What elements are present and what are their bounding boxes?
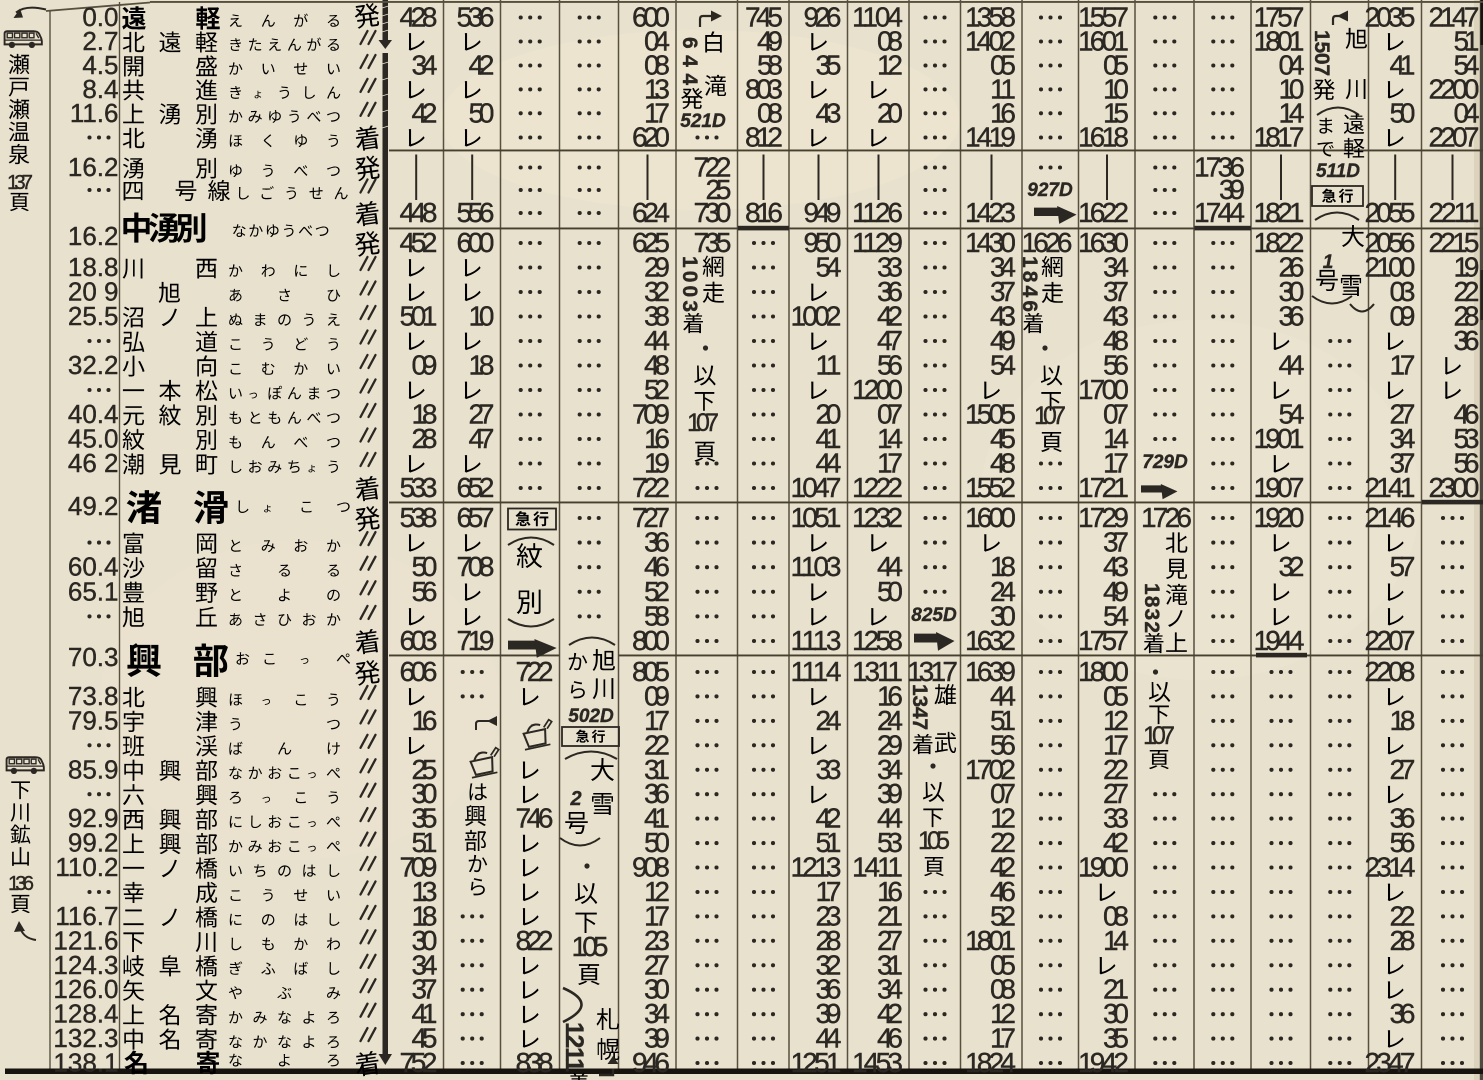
svg-text:1251: 1251 bbox=[791, 1047, 842, 1078]
svg-text:18: 18 bbox=[1390, 705, 1416, 736]
svg-text:12: 12 bbox=[877, 50, 903, 81]
svg-text:1721: 1721 bbox=[1078, 472, 1129, 503]
svg-text:1507: 1507 bbox=[1310, 30, 1333, 76]
svg-text:09: 09 bbox=[1390, 301, 1416, 332]
svg-text:107: 107 bbox=[1034, 402, 1066, 430]
svg-text:1453: 1453 bbox=[852, 1047, 903, 1078]
svg-text:25.5: 25.5 bbox=[68, 301, 119, 331]
svg-text:110.2: 110.2 bbox=[55, 852, 118, 882]
svg-text:2035: 2035 bbox=[1365, 2, 1416, 33]
svg-text:2347: 2347 bbox=[1365, 1047, 1416, 1078]
svg-text:56: 56 bbox=[412, 576, 438, 607]
svg-text:50: 50 bbox=[877, 576, 903, 607]
svg-text:41: 41 bbox=[1390, 50, 1416, 81]
svg-text:2146: 2146 bbox=[1365, 502, 1416, 533]
svg-text:538: 538 bbox=[400, 502, 438, 533]
svg-text:18: 18 bbox=[469, 350, 495, 381]
svg-text:1419: 1419 bbox=[965, 122, 1016, 153]
svg-text:652: 652 bbox=[457, 472, 495, 503]
svg-text:1901: 1901 bbox=[1254, 423, 1305, 454]
svg-text:1600: 1600 bbox=[965, 502, 1016, 533]
svg-text:1232: 1232 bbox=[852, 502, 903, 533]
svg-text:722: 722 bbox=[516, 656, 554, 687]
svg-text:11.6: 11.6 bbox=[70, 98, 119, 128]
svg-text:1626: 1626 bbox=[1022, 227, 1073, 258]
svg-text:536: 536 bbox=[457, 2, 495, 33]
svg-text:722: 722 bbox=[632, 472, 670, 503]
svg-text:729D: 729D bbox=[1142, 452, 1188, 473]
svg-text:27: 27 bbox=[1390, 754, 1416, 785]
svg-text:603: 603 bbox=[400, 625, 438, 656]
svg-text:926: 926 bbox=[804, 2, 842, 33]
svg-text:511D: 511D bbox=[1316, 161, 1360, 182]
svg-text:32.2: 32.2 bbox=[68, 350, 119, 380]
svg-text:822: 822 bbox=[516, 925, 554, 956]
svg-text:2207: 2207 bbox=[1429, 122, 1480, 153]
svg-text:79.5: 79.5 bbox=[68, 705, 119, 735]
svg-text:1632: 1632 bbox=[965, 625, 1016, 656]
svg-text:657: 657 bbox=[457, 502, 495, 533]
svg-text:20: 20 bbox=[877, 97, 903, 128]
svg-text:107: 107 bbox=[1143, 722, 1175, 750]
svg-text:50: 50 bbox=[1390, 97, 1416, 128]
svg-text:54: 54 bbox=[816, 252, 842, 283]
svg-text:816: 816 bbox=[745, 197, 783, 228]
svg-text:10: 10 bbox=[469, 301, 495, 332]
svg-text:1757: 1757 bbox=[1078, 625, 1129, 656]
svg-text:54: 54 bbox=[990, 350, 1016, 381]
svg-text:624: 624 bbox=[632, 197, 670, 228]
svg-text:1618: 1618 bbox=[1078, 122, 1129, 153]
svg-text:32: 32 bbox=[1279, 551, 1305, 582]
svg-text:85.9: 85.9 bbox=[68, 754, 119, 784]
svg-text:452: 452 bbox=[400, 227, 438, 258]
svg-text:1552: 1552 bbox=[965, 472, 1016, 503]
svg-text:1347: 1347 bbox=[908, 684, 931, 730]
svg-text:2: 2 bbox=[569, 788, 581, 810]
svg-text:719: 719 bbox=[457, 625, 495, 656]
svg-text:533: 533 bbox=[400, 472, 438, 503]
svg-text:1832: 1832 bbox=[1140, 583, 1163, 633]
svg-text:927D: 927D bbox=[1027, 180, 1073, 201]
svg-text:752: 752 bbox=[400, 1047, 438, 1078]
svg-text:14: 14 bbox=[1103, 925, 1129, 956]
svg-text:33: 33 bbox=[816, 754, 842, 785]
svg-text:28: 28 bbox=[412, 423, 438, 454]
svg-text:2300: 2300 bbox=[1429, 472, 1480, 503]
svg-text:708: 708 bbox=[457, 551, 495, 582]
svg-text:1113: 1113 bbox=[791, 625, 842, 656]
svg-text:36: 36 bbox=[1279, 301, 1305, 332]
svg-text:2208: 2208 bbox=[1365, 656, 1416, 687]
svg-text:17: 17 bbox=[1390, 350, 1416, 381]
svg-text:825D: 825D bbox=[911, 605, 957, 626]
svg-text:1821: 1821 bbox=[1254, 197, 1305, 228]
svg-text:730: 730 bbox=[694, 197, 732, 228]
svg-text:746: 746 bbox=[516, 803, 554, 834]
svg-text:2141: 2141 bbox=[1365, 472, 1416, 503]
svg-text:47: 47 bbox=[469, 423, 495, 454]
svg-text:1211: 1211 bbox=[560, 1022, 588, 1072]
svg-text:138.1: 138.1 bbox=[53, 1048, 118, 1078]
svg-text:49.2: 49.2 bbox=[68, 491, 119, 521]
svg-text:1944: 1944 bbox=[1254, 625, 1305, 656]
svg-text:16: 16 bbox=[412, 705, 438, 736]
svg-text:1051: 1051 bbox=[791, 502, 842, 533]
svg-text:606: 606 bbox=[400, 656, 438, 687]
svg-text:35: 35 bbox=[816, 50, 842, 81]
svg-text:107: 107 bbox=[687, 409, 719, 437]
svg-text:43: 43 bbox=[816, 97, 842, 128]
svg-text:1824: 1824 bbox=[965, 1047, 1016, 1078]
svg-text:502D: 502D bbox=[568, 706, 614, 727]
svg-text:1423: 1423 bbox=[965, 197, 1016, 228]
svg-text:428: 428 bbox=[400, 2, 438, 33]
svg-text:09: 09 bbox=[412, 350, 438, 381]
svg-text:521D: 521D bbox=[680, 111, 726, 132]
svg-text:50: 50 bbox=[469, 97, 495, 128]
svg-text:946: 946 bbox=[632, 1047, 670, 1078]
svg-text:600: 600 bbox=[457, 227, 495, 258]
svg-text:16.2: 16.2 bbox=[68, 152, 119, 182]
svg-text:24: 24 bbox=[816, 705, 842, 736]
svg-text:36: 36 bbox=[1390, 998, 1416, 1029]
svg-text:556: 556 bbox=[457, 197, 495, 228]
svg-text:2314: 2314 bbox=[1365, 852, 1416, 883]
svg-text:65.1: 65.1 bbox=[68, 576, 119, 606]
svg-text:11: 11 bbox=[816, 350, 842, 381]
svg-text:1744: 1744 bbox=[1194, 197, 1245, 228]
svg-text:1114: 1114 bbox=[791, 656, 842, 687]
svg-text:1047: 1047 bbox=[791, 472, 842, 503]
svg-text:448: 448 bbox=[400, 197, 438, 228]
svg-text:1317: 1317 bbox=[907, 656, 958, 687]
svg-text:1126: 1126 bbox=[852, 197, 903, 228]
svg-text:501: 501 bbox=[400, 301, 438, 332]
svg-text:1907: 1907 bbox=[1254, 472, 1305, 503]
svg-text:812: 812 bbox=[745, 122, 783, 153]
svg-text:136: 136 bbox=[8, 872, 34, 895]
svg-text:2207: 2207 bbox=[1365, 625, 1416, 656]
svg-text:2211: 2211 bbox=[1429, 197, 1480, 228]
svg-text:620: 620 bbox=[632, 122, 670, 153]
svg-text:16.2: 16.2 bbox=[68, 221, 119, 251]
svg-text:44: 44 bbox=[1279, 350, 1305, 381]
svg-text:800: 800 bbox=[632, 625, 670, 656]
svg-text:1103: 1103 bbox=[791, 551, 842, 582]
svg-text:105: 105 bbox=[572, 931, 609, 962]
svg-text:28: 28 bbox=[1390, 925, 1416, 956]
svg-text:42: 42 bbox=[412, 97, 438, 128]
svg-text:1900: 1900 bbox=[1078, 852, 1129, 883]
svg-text:1002: 1002 bbox=[791, 301, 842, 332]
svg-text:1817: 1817 bbox=[1254, 122, 1305, 153]
svg-text:644: 644 bbox=[678, 37, 701, 85]
svg-text:34: 34 bbox=[412, 50, 438, 81]
svg-text:42: 42 bbox=[469, 50, 495, 81]
svg-text:1726: 1726 bbox=[1141, 502, 1192, 533]
svg-text:949: 949 bbox=[804, 197, 842, 228]
svg-text:1222: 1222 bbox=[852, 472, 903, 503]
svg-text:36: 36 bbox=[1454, 325, 1480, 356]
svg-text:1942: 1942 bbox=[1078, 1047, 1129, 1078]
svg-text:1920: 1920 bbox=[1254, 502, 1305, 533]
svg-text:1: 1 bbox=[1323, 252, 1334, 273]
svg-text:70.3: 70.3 bbox=[68, 642, 119, 672]
svg-text:137: 137 bbox=[7, 171, 33, 194]
svg-text:838: 838 bbox=[516, 1047, 554, 1078]
svg-text:1258: 1258 bbox=[852, 625, 903, 656]
svg-text:1622: 1622 bbox=[1078, 197, 1129, 228]
svg-text:46 2: 46 2 bbox=[68, 448, 119, 478]
svg-text:105: 105 bbox=[918, 827, 950, 855]
svg-text:735: 735 bbox=[694, 227, 732, 258]
svg-text:2055: 2055 bbox=[1365, 197, 1416, 228]
svg-text:57: 57 bbox=[1390, 551, 1416, 582]
